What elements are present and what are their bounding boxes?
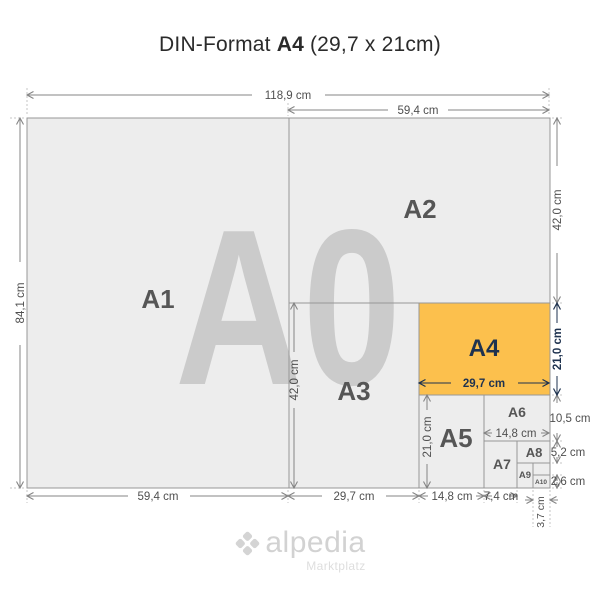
label-a5: A5 (439, 423, 472, 453)
dim-top-half-width: 59,4 cm (398, 105, 439, 117)
dim-bottom-a3-width: 29,7 cm (334, 491, 375, 503)
label-a9: A9 (519, 470, 531, 481)
dim-bottom-a7-width: 7,4 cm (484, 491, 519, 503)
dim-a5-height: 21,0 cm (422, 417, 434, 458)
label-a4: A4 (469, 335, 500, 362)
dim-right-a6-height: 10,5 cm (550, 413, 591, 425)
alpedia-clover-icon (234, 530, 261, 557)
din-format-diagram: A0 A1 A2 A3 A4 A5 A6 A7 A8 A9 A10 (0, 0, 600, 600)
dim-top-width: 118,9 cm (265, 90, 311, 102)
label-a3: A3 (337, 376, 370, 406)
dim-right-a2-height: 42,0 cm (552, 190, 564, 231)
label-a6: A6 (508, 404, 526, 420)
dim-a3-height: 42,0 cm (289, 360, 301, 401)
label-a2: A2 (403, 194, 436, 224)
dim-a6-width: 14,8 cm (496, 428, 537, 440)
dim-left-height: 84,1 cm (15, 283, 27, 324)
label-a8: A8 (526, 445, 543, 460)
dim-a4-width: 29,7 cm (463, 378, 505, 390)
dim-bottom-a10-width: 3,7 cm (535, 496, 547, 528)
label-a7: A7 (493, 456, 511, 472)
dim-bottom-a5-width: 14,8 cm (432, 491, 473, 503)
dim-right-a8-height: 5,2 cm (551, 447, 586, 459)
dim-right-a4-height: 21,0 cm (552, 328, 564, 370)
label-a1: A1 (141, 284, 174, 314)
dim-bottom-a1-width: 59,4 cm (138, 491, 179, 503)
brand-name: alpedia (265, 528, 365, 558)
dim-right-a10-height: 2,6 cm (551, 476, 586, 488)
footer-logo: alpedia Marktplatz (0, 528, 600, 573)
brand-tagline: Marktplatz (234, 559, 365, 573)
label-a10: A10 (535, 479, 547, 486)
